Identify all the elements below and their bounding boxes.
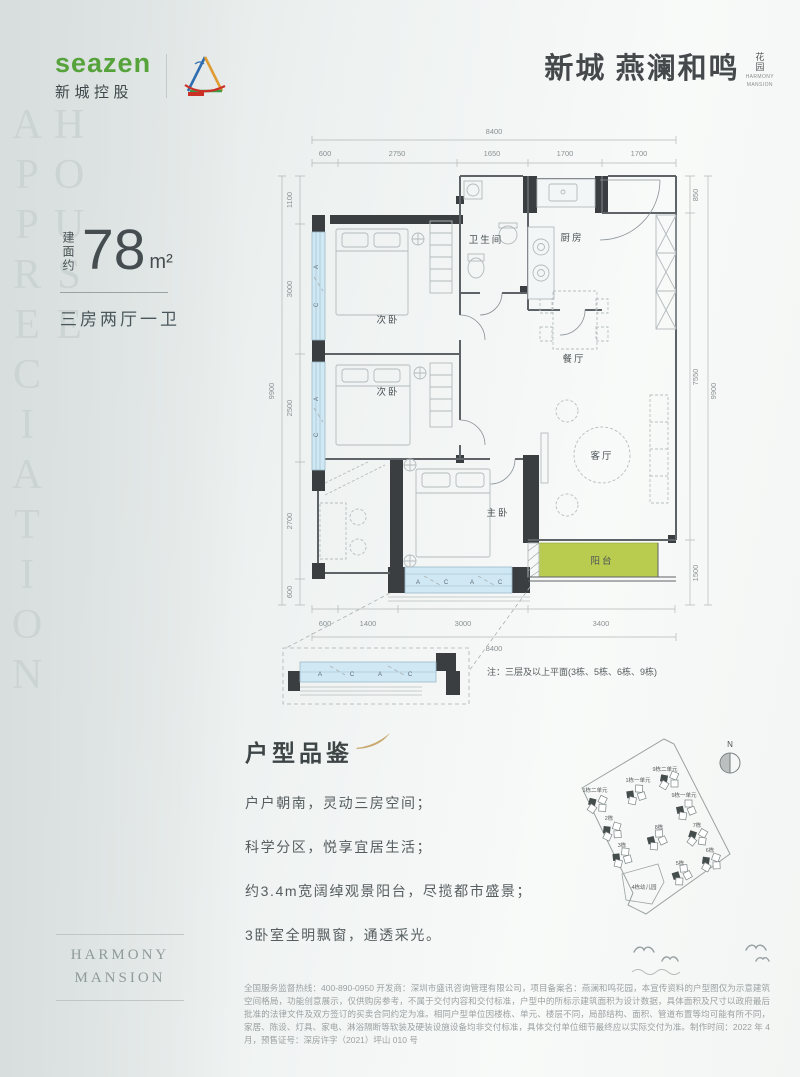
- area-prefix-label: 建面约: [60, 231, 77, 273]
- dim-label: 9900: [709, 383, 718, 400]
- window-mark: C: [314, 302, 320, 307]
- dim-label: 3400: [593, 619, 610, 628]
- dim-label: 9900: [267, 383, 276, 400]
- dim-label: 2750: [389, 149, 406, 158]
- compass-n-label: N: [727, 740, 733, 749]
- appreciation-line: 约3.4m宽阔绰观景阳台，尽揽都市盛景；: [245, 881, 585, 901]
- unit-divider: [60, 292, 168, 293]
- buildings: 9栋二单元 1栋一单元 1栋二单元 9栋一单元 2栋 8栋 7栋 3栋 6栋 5…: [582, 765, 722, 904]
- room-label-balcony: 阳台: [590, 555, 613, 567]
- swallow-decoration: [628, 940, 788, 982]
- seazen-wordmark: seazen: [55, 50, 151, 77]
- dim-label: 8400: [486, 127, 503, 136]
- dim-label: 600: [319, 619, 332, 628]
- window-mark: C: [314, 432, 320, 437]
- dim-label: 2500: [285, 400, 294, 417]
- site-plan: N 9栋二单元 1栋一单元 1栋二单元 9栋一单元 2栋 8栋 7栋 3栋 6栋: [578, 722, 793, 937]
- project-suffix-en: HARMONY MANSION: [746, 74, 774, 89]
- room-label-bathroom: 卫生间: [469, 234, 504, 246]
- dim-label: 600: [285, 586, 294, 599]
- building-label: 7栋: [693, 821, 702, 829]
- building-label: 2栋: [605, 814, 614, 822]
- bay-window-detail: A C A C 注：三层及以上平面(3栋、5栋、6栋、9栋): [283, 587, 657, 704]
- appreciation-line: 户户朝南，灵动三房空间；: [245, 793, 585, 813]
- triangle-quality-mark-icon: [182, 52, 228, 100]
- building-label: 5栋: [676, 859, 685, 867]
- appreciation-line: 科学分区，悦享宜居生活；: [245, 837, 585, 857]
- building-label: 9栋二单元: [652, 765, 678, 773]
- bay-window-mark: C: [444, 580, 449, 586]
- project-title-suffix: 花园 HARMONY MANSION: [746, 52, 774, 89]
- room-label-bedroom: 次卧: [376, 314, 399, 326]
- dim-label: 1700: [557, 149, 574, 158]
- windows: A C A C A C A C: [312, 232, 530, 601]
- room-label-living: 客厅: [590, 450, 613, 462]
- room-label-master: 主卧: [486, 507, 509, 519]
- building-label: 4栋幼儿园: [631, 883, 657, 891]
- seazen-cn-wordmark: 新城控股: [55, 81, 151, 102]
- building-label: 3栋: [618, 841, 627, 849]
- gold-swoosh-icon: [355, 732, 391, 750]
- appreciation-title-row: 户型品鉴: [245, 734, 585, 768]
- dim-label: 1500: [691, 565, 700, 582]
- detail-mark: C: [350, 672, 355, 678]
- project-title: 新城 燕澜和鸣: [544, 52, 739, 87]
- doors: [460, 180, 660, 484]
- unit-layout-label: 三房两厅一卫: [60, 305, 180, 330]
- dim-label: 8400: [486, 644, 503, 653]
- seazen-logo: seazen 新城控股: [55, 50, 151, 102]
- room-label-dining: 餐厅: [562, 353, 585, 365]
- room-labels: 次卧 次卧 卫生间 厨房 餐厅 客厅 主卧 阳台: [376, 232, 613, 567]
- building-label: 9栋一单元: [671, 791, 697, 799]
- detail-note: 注：三层及以上平面(3栋、5栋、6栋、9栋): [487, 666, 657, 677]
- window-mark: A: [314, 397, 320, 401]
- footer-logo-line1: HARMONY: [56, 944, 184, 967]
- detail-mark: A: [378, 672, 382, 678]
- project-title-block: 新城 燕澜和鸣 花园 HARMONY MANSION: [544, 52, 774, 89]
- floor-plan: 8400 600 2750 1650 1700 1700 600 1400 30…: [250, 115, 750, 735]
- room-label-kitchen: 厨房: [560, 232, 583, 244]
- dim-label: 2700: [285, 513, 294, 530]
- appreciation-section: 户型品鉴 户户朝南，灵动三房空间； 科学分区，悦享宜居生活； 约3.4m宽阔绰观…: [245, 734, 585, 969]
- building-label: 6栋: [706, 846, 715, 854]
- dim-label: 3000: [285, 281, 294, 298]
- dim-label: 7550: [691, 369, 700, 386]
- footer-logo: HARMONY MANSION: [56, 934, 184, 1001]
- dim-label: 600: [319, 149, 332, 158]
- room-label-bedroom: 次卧: [376, 386, 399, 398]
- area-value: 78: [82, 222, 145, 279]
- brand-logo: seazen 新城控股: [55, 50, 228, 102]
- appreciation-lines: 户户朝南，灵动三房空间； 科学分区，悦享宜居生活； 约3.4m宽阔绰观景阳台，尽…: [245, 793, 585, 945]
- project-suffix-cn: 花园: [753, 52, 766, 72]
- area-unit: m²: [149, 251, 172, 274]
- appreciation-title: 户型品鉴: [245, 734, 353, 768]
- window-mark: A: [314, 265, 320, 269]
- unit-info: 建面约 78 m² 三房两厅一卫: [60, 222, 180, 330]
- brochure-page: HOUSE APPRECIATION seazen 新城控股 新城 燕澜和鸣 花…: [0, 0, 800, 1077]
- dim-label: 850: [691, 189, 700, 202]
- bay-window-mark: A: [416, 580, 420, 586]
- appreciation-line: 3卧室全明飘窗，通透采光。: [245, 925, 585, 945]
- compass: N: [720, 740, 740, 773]
- dim-label: 3000: [455, 619, 472, 628]
- building-label: 1栋一单元: [625, 776, 651, 784]
- detail-mark: A: [318, 672, 322, 678]
- footer-logo-line2: MANSION: [56, 967, 184, 990]
- dim-label: 1700: [631, 149, 648, 158]
- logo-divider: [166, 54, 167, 98]
- dim-label: 1650: [484, 149, 501, 158]
- bay-window-mark: C: [498, 580, 503, 586]
- bay-window-mark: A: [470, 580, 474, 586]
- detail-mark: C: [408, 672, 413, 678]
- building-label: 1栋二单元: [582, 786, 608, 794]
- dim-label: 1400: [360, 619, 377, 628]
- building-label: 8栋: [655, 823, 664, 831]
- legal-disclaimer: 全国服务监督热线：400-890-0950 开发商：深圳市盛讯咨询管理有限公司，…: [244, 982, 770, 1047]
- dim-label: 1100: [285, 192, 294, 208]
